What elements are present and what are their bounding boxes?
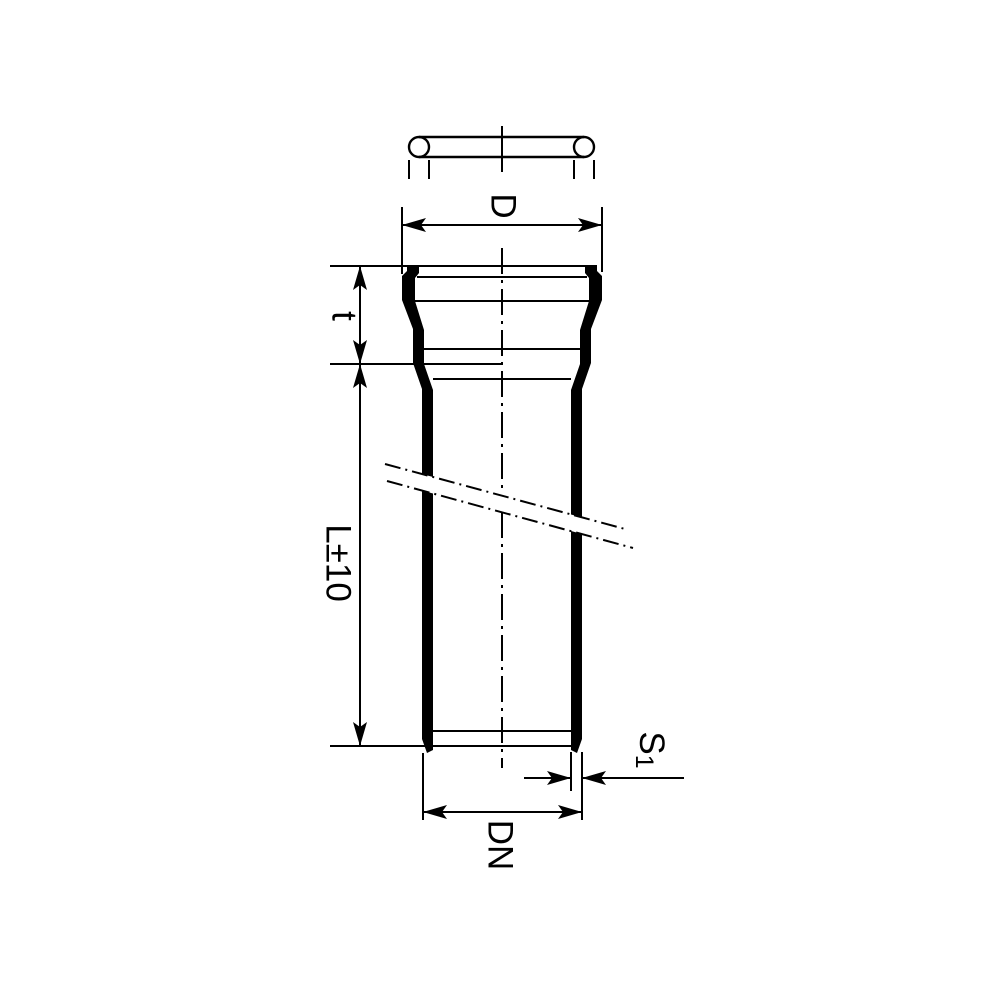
pipe-drawing-canvas: D t L±10 [0,0,1000,1000]
s1-label-subscript: 1 [630,755,658,769]
t-label: t [325,311,364,321]
l-label: L±10 [319,524,358,602]
d-label: D [484,193,523,218]
pipe-wall-lower-right [571,531,582,753]
technical-drawing-page: D t L±10 [0,0,1000,1000]
dn-label: DN [481,820,520,871]
s1-label-base: S [633,731,672,754]
pipe-wall-lower-left [422,491,433,754]
